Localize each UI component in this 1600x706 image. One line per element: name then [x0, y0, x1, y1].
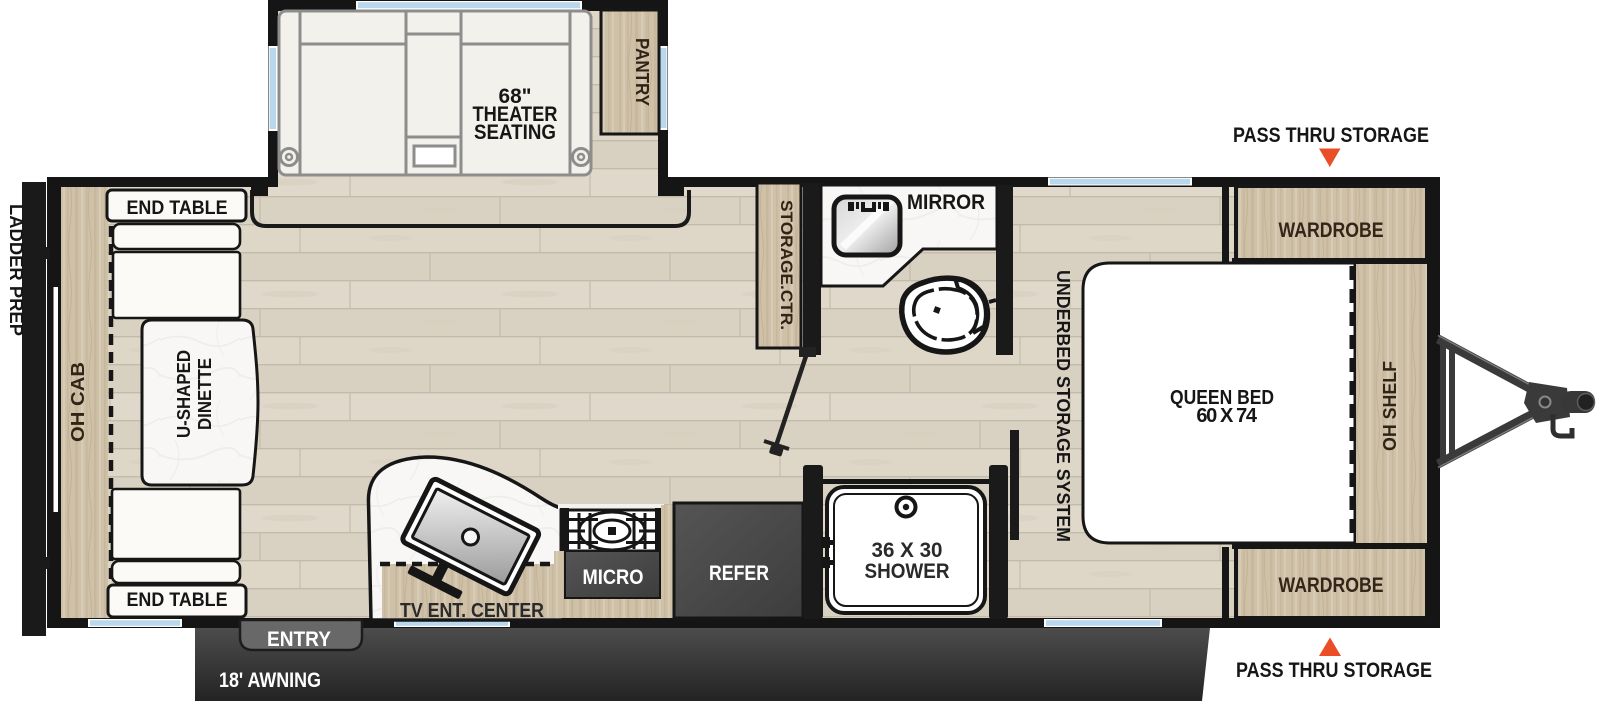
svg-text:UNDERBED STORAGE SYSTEM: UNDERBED STORAGE SYSTEM — [1053, 270, 1073, 542]
svg-text:WARDROBE: WARDROBE — [1279, 219, 1384, 242]
svg-text:DINETTE: DINETTE — [195, 358, 215, 430]
svg-text:36 X 30: 36 X 30 — [872, 539, 943, 562]
svg-text:60 X 74: 60 X 74 — [1196, 405, 1257, 427]
svg-text:END TABLE: END TABLE — [127, 198, 228, 219]
svg-text:18' AWNING: 18' AWNING — [219, 669, 321, 692]
svg-text:MICRO: MICRO — [583, 566, 644, 589]
svg-text:WARDROBE: WARDROBE — [1279, 574, 1384, 597]
svg-text:LADDER PREP: LADDER PREP — [6, 204, 26, 336]
svg-text:U-SHAPED: U-SHAPED — [174, 350, 194, 438]
svg-text:PASS THRU STORAGE: PASS THRU STORAGE — [1233, 124, 1429, 147]
svg-text:ENTRY: ENTRY — [267, 628, 331, 651]
svg-text:OH SHELF: OH SHELF — [1380, 361, 1400, 451]
svg-text:STORAGE.CTR.: STORAGE.CTR. — [777, 200, 796, 330]
svg-text:REFER: REFER — [709, 562, 769, 585]
svg-text:PASS THRU STORAGE: PASS THRU STORAGE — [1236, 659, 1432, 682]
svg-text:SEATING: SEATING — [474, 121, 556, 144]
svg-text:OH CAB: OH CAB — [68, 362, 88, 442]
svg-text:SHOWER: SHOWER — [865, 560, 950, 583]
svg-text:TV ENT. CENTER: TV ENT. CENTER — [400, 600, 544, 622]
svg-text:PANTRY: PANTRY — [632, 38, 652, 106]
svg-text:MIRROR: MIRROR — [907, 191, 985, 214]
svg-text:END TABLE: END TABLE — [127, 590, 228, 611]
